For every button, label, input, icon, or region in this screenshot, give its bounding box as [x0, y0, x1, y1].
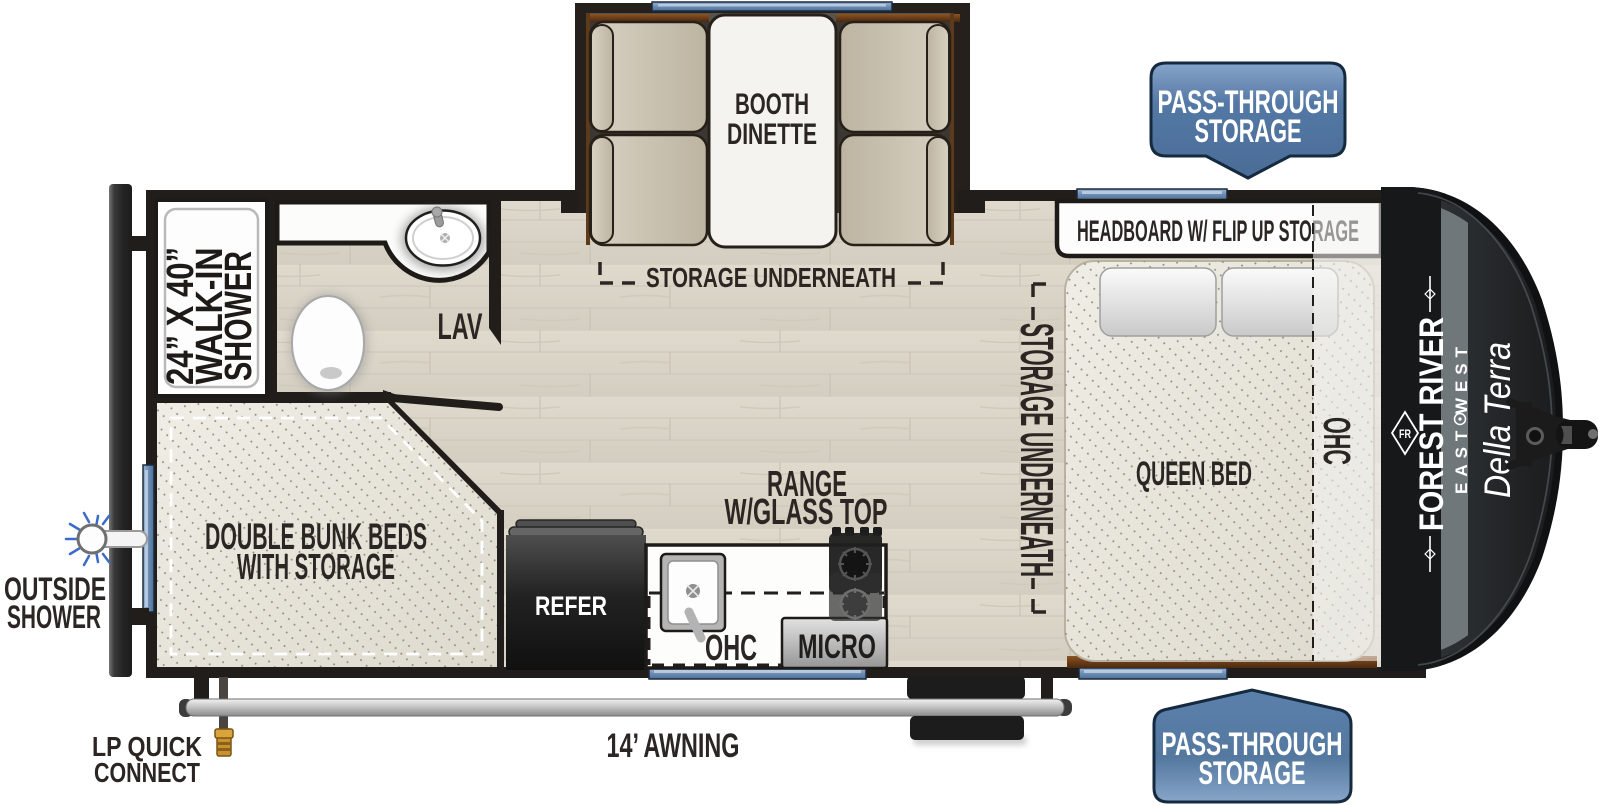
- svg-text:FR: FR: [1399, 427, 1411, 441]
- svg-text:SHOWER: SHOWER: [7, 599, 101, 635]
- svg-text:WITH STORAGE: WITH STORAGE: [237, 546, 395, 587]
- svg-text:STORAGE UNDERNEATH: STORAGE UNDERNEATH: [1011, 323, 1063, 577]
- svg-text:STORAGE UNDERNEATH: STORAGE UNDERNEATH: [646, 262, 896, 293]
- svg-text:STORAGE: STORAGE: [1195, 113, 1302, 149]
- svg-text:W/GLASS TOP: W/GLASS TOP: [725, 491, 888, 532]
- svg-text:REFER: REFER: [535, 591, 607, 621]
- svg-text:LAV: LAV: [438, 306, 483, 347]
- svg-text:14’ AWNING: 14’ AWNING: [607, 727, 740, 765]
- svg-text:MICRO: MICRO: [798, 628, 876, 666]
- svg-text:CONNECT: CONNECT: [94, 757, 200, 788]
- svg-text:STORAGE: STORAGE: [1199, 755, 1306, 791]
- svg-text:OHC: OHC: [1315, 417, 1357, 465]
- svg-text:SHOWER: SHOWER: [218, 251, 260, 381]
- svg-text:Della Terra: Della Terra: [1477, 342, 1518, 498]
- svg-text:DINETTE: DINETTE: [727, 118, 817, 151]
- svg-text:BOOTH: BOOTH: [735, 88, 809, 121]
- svg-text:OHC: OHC: [705, 627, 757, 668]
- svg-text:QUEEN BED: QUEEN BED: [1136, 455, 1252, 493]
- svg-text:FOREST RIVER: FOREST RIVER: [1413, 317, 1451, 531]
